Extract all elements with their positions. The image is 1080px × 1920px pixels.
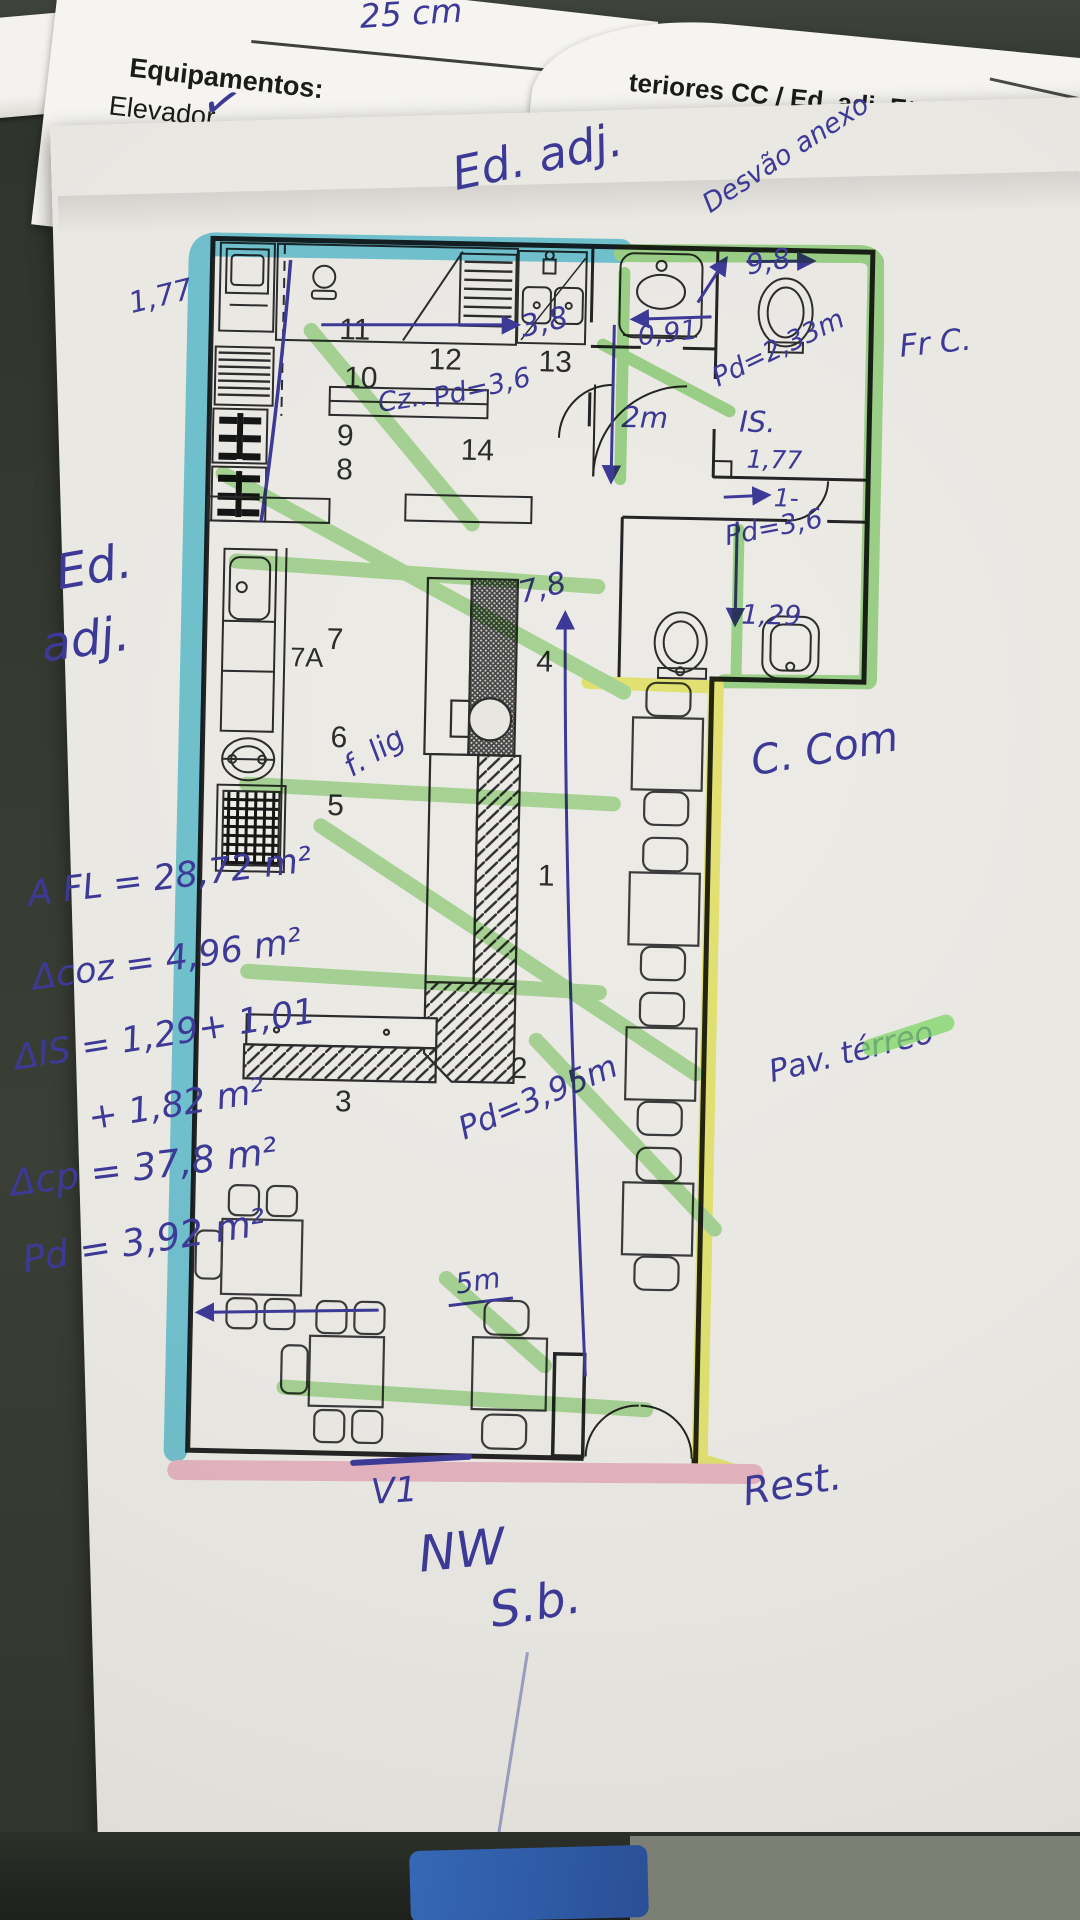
pink-wall-highlight: [177, 1462, 753, 1482]
svg-text:3: 3: [335, 1085, 352, 1118]
svg-text:12: 12: [428, 343, 462, 377]
toilet-icon-wc: [654, 612, 707, 679]
svg-text:7: 7: [326, 623, 343, 656]
note-25cm: 25 cm: [359, 0, 464, 33]
svg-text:13: 13: [538, 345, 572, 379]
note-sb: S.b.: [486, 1572, 584, 1635]
svg-text:f. lig: f. lig: [338, 720, 412, 784]
svg-text:1,77: 1,77: [746, 445, 802, 475]
svg-text:1,29: 1,29: [741, 600, 802, 632]
floor-bottom-right: [630, 1836, 1080, 1920]
svg-text:1: 1: [537, 859, 554, 892]
svg-text:14: 14: [460, 434, 494, 468]
note-fr-c: Fr C.: [898, 324, 973, 362]
burner-icon: [222, 738, 275, 781]
note-nw: NW: [416, 1521, 508, 1580]
stove-icon: [211, 408, 267, 521]
table-group: [471, 1300, 548, 1450]
svg-text:7A: 7A: [290, 642, 324, 673]
svg-text:IS.: IS.: [739, 404, 776, 439]
note-v1: V1: [370, 1473, 419, 1511]
blue-object: [409, 1845, 649, 1920]
table-group: [280, 1300, 385, 1443]
photo-of-annotated-floor-plan: 25 cm Equipamentos: Elevador ✓ Rede de C…: [0, 0, 1080, 1920]
note-ed-left: Ed.: [52, 537, 135, 597]
sink-icon: [313, 266, 335, 288]
svg-text:0,91: 0,91: [636, 314, 699, 352]
svg-text:3,8: 3,8: [517, 300, 571, 345]
svg-text:2m: 2m: [621, 400, 668, 435]
note-9-8: 9,8: [744, 244, 793, 279]
table-group: [628, 837, 701, 980]
note-adj-left: adj.: [38, 610, 132, 670]
svg-text:Pd=2,33m: Pd=2,33m: [708, 303, 850, 393]
svg-text:11: 11: [339, 313, 371, 347]
table-group: [631, 682, 704, 825]
svg-text:2: 2: [510, 1052, 527, 1085]
svg-text:8: 8: [336, 453, 353, 486]
svg-text:9: 9: [337, 419, 354, 452]
